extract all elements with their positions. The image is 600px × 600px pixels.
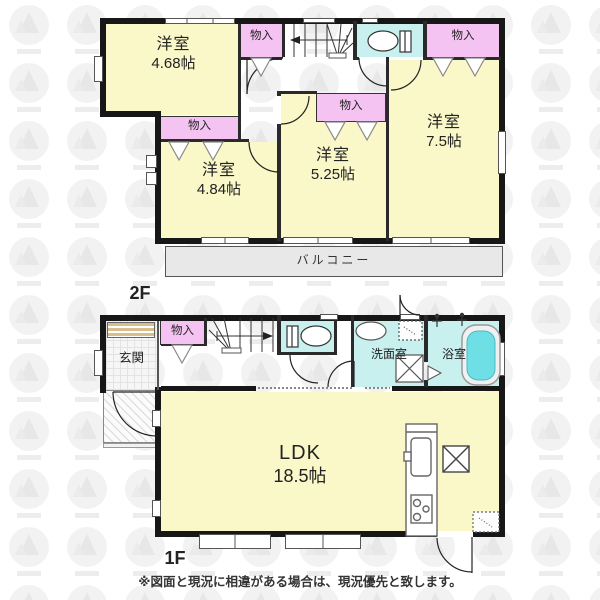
- room-size: 18.5帖: [230, 466, 370, 487]
- stairs-1f: [209, 318, 273, 353]
- closet-label: 物入: [161, 120, 238, 134]
- room-label-southwest-2f: 洋室 4.84帖: [169, 162, 269, 199]
- closet-label: 物入: [427, 30, 499, 44]
- room-label-south-2f: 洋室 5.25帖: [283, 147, 383, 184]
- closet-label: 物入: [317, 100, 385, 114]
- floor-storage: [473, 512, 499, 532]
- toilet-icon-2f: [368, 31, 411, 52]
- disclaimer-text: ※図面と現況に相違がある場合は、現況優先と致します。: [0, 571, 600, 590]
- bathroom-label: 浴室: [424, 347, 484, 361]
- entrance-label: 玄関: [106, 351, 157, 366]
- room-size: 7.5帖: [394, 133, 494, 151]
- room-name: LDK: [230, 442, 370, 466]
- floor-label-1f: 1F: [153, 548, 197, 569]
- kitchen-counter: [404, 424, 437, 536]
- closet-label: 物入: [241, 30, 282, 44]
- bath-door: [428, 366, 441, 380]
- floor-label-2f: 2F: [118, 283, 162, 304]
- room-label-east-2f: 洋室 7.5帖: [394, 114, 494, 151]
- stairs-2f: [290, 24, 353, 58]
- refrigerator-space: [443, 446, 469, 472]
- room-name: 洋室: [169, 162, 269, 181]
- room-size: 4.68帖: [126, 55, 221, 73]
- room-size: 4.84帖: [169, 181, 269, 199]
- room-size: 5.25帖: [283, 166, 383, 184]
- closet-label: 物入: [161, 325, 204, 339]
- room-label-ldk: LDK 18.5帖: [230, 442, 370, 487]
- floor-plan-canvas: 洋室 4.68帖 洋室 4.84帖 洋室 5.25帖 洋室 7.5帖 LDK 1…: [0, 0, 600, 600]
- room-name: 洋室: [126, 36, 221, 55]
- room-name: 洋室: [394, 114, 494, 133]
- room-label-west-2f: 洋室 4.68帖: [126, 36, 221, 73]
- toilet-icon-1f: [287, 326, 331, 347]
- washroom-label: 洗面室: [354, 347, 424, 361]
- balcony-label: バルコニー: [165, 253, 503, 267]
- room-name: 洋室: [283, 147, 383, 166]
